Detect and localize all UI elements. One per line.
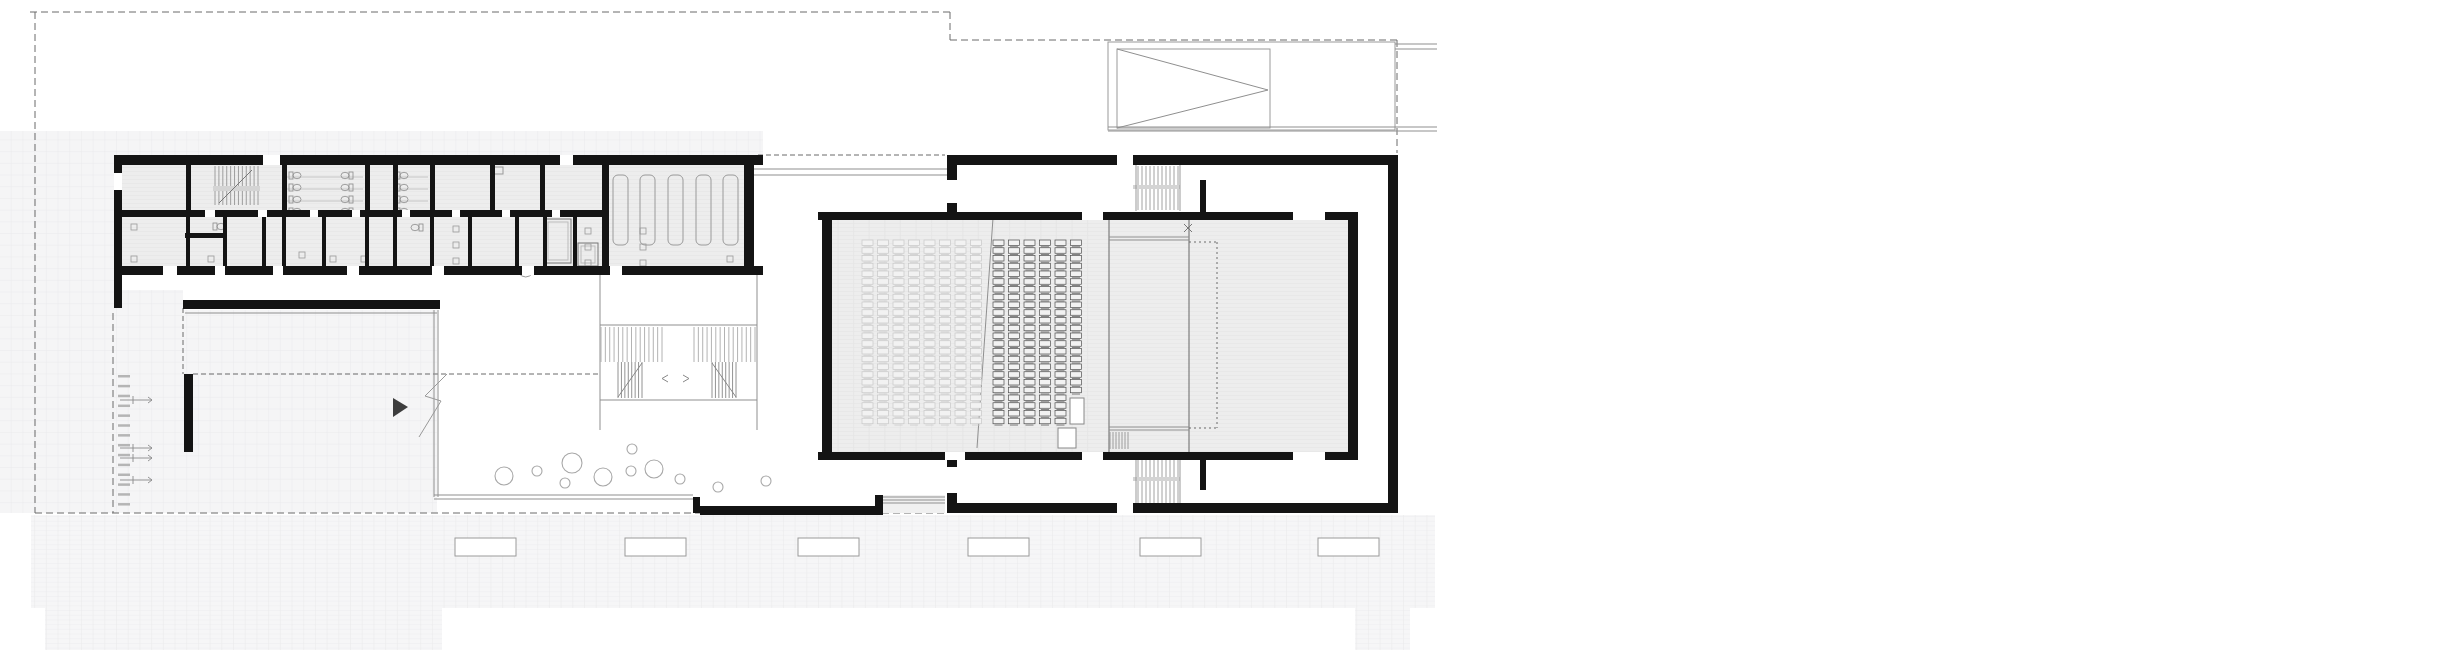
seat bbox=[940, 372, 951, 378]
bike-rack-tick bbox=[118, 503, 130, 506]
skylight-marker bbox=[1140, 538, 1201, 556]
paving-region bbox=[0, 158, 114, 513]
skylight-marker bbox=[1318, 538, 1379, 556]
seat bbox=[924, 302, 935, 308]
seat bbox=[909, 294, 920, 300]
seat bbox=[862, 333, 873, 339]
wall-segment bbox=[744, 155, 754, 275]
seat bbox=[893, 403, 904, 409]
seat bbox=[1071, 387, 1082, 393]
wall-segment bbox=[186, 217, 190, 266]
bike-rack-tick bbox=[118, 474, 130, 477]
seat bbox=[993, 403, 1004, 409]
seat bbox=[955, 380, 966, 386]
seat bbox=[924, 325, 935, 331]
seat bbox=[1055, 364, 1066, 370]
seat bbox=[893, 380, 904, 386]
seat bbox=[1009, 302, 1020, 308]
seat bbox=[993, 248, 1004, 254]
seat bbox=[971, 263, 982, 269]
seat bbox=[993, 240, 1004, 246]
seat bbox=[909, 380, 920, 386]
seat bbox=[1040, 302, 1051, 308]
seat bbox=[862, 240, 873, 246]
seat bbox=[993, 271, 1004, 277]
seat bbox=[862, 294, 873, 300]
seat bbox=[878, 418, 889, 424]
seat bbox=[1024, 356, 1035, 362]
seat bbox=[955, 263, 966, 269]
seat bbox=[955, 248, 966, 254]
seat bbox=[924, 333, 935, 339]
seat bbox=[893, 294, 904, 300]
seat bbox=[862, 302, 873, 308]
seat bbox=[862, 310, 873, 316]
door-opening bbox=[310, 210, 318, 217]
seat bbox=[1055, 271, 1066, 277]
seat bbox=[971, 271, 982, 277]
seat bbox=[1009, 263, 1020, 269]
seat bbox=[1040, 263, 1051, 269]
seat bbox=[1071, 380, 1082, 386]
seat bbox=[1009, 279, 1020, 285]
seat bbox=[1009, 287, 1020, 293]
seat bbox=[1055, 341, 1066, 347]
floor-plan-drawing bbox=[0, 0, 2450, 650]
control-desk bbox=[1058, 428, 1076, 448]
seat bbox=[1009, 248, 1020, 254]
door-opening bbox=[552, 210, 560, 217]
seat bbox=[955, 364, 966, 370]
wall-segment bbox=[602, 165, 609, 266]
seat bbox=[1055, 287, 1066, 293]
seat bbox=[1040, 240, 1051, 246]
seat bbox=[924, 279, 935, 285]
seat bbox=[1055, 248, 1066, 254]
seat bbox=[993, 341, 1004, 347]
seat bbox=[1009, 325, 1020, 331]
seat bbox=[862, 325, 873, 331]
door-opening bbox=[452, 210, 460, 217]
seat bbox=[1071, 279, 1082, 285]
seat bbox=[893, 256, 904, 262]
seat bbox=[893, 356, 904, 362]
wall-segment bbox=[121, 210, 602, 217]
seat bbox=[993, 395, 1004, 401]
seat bbox=[1040, 349, 1051, 355]
seat bbox=[955, 349, 966, 355]
seat bbox=[909, 287, 920, 293]
seat bbox=[1055, 310, 1066, 316]
seat bbox=[1040, 387, 1051, 393]
seat bbox=[1009, 403, 1020, 409]
seat bbox=[955, 325, 966, 331]
seat bbox=[1071, 302, 1082, 308]
seat bbox=[1055, 333, 1066, 339]
seat bbox=[924, 418, 935, 424]
seat bbox=[971, 411, 982, 417]
seat bbox=[955, 403, 966, 409]
seat bbox=[878, 349, 889, 355]
seat bbox=[893, 263, 904, 269]
seat bbox=[940, 356, 951, 362]
bike-rack-tick bbox=[118, 464, 130, 467]
wall-segment bbox=[393, 165, 398, 211]
seat bbox=[1009, 418, 1020, 424]
wall-segment bbox=[365, 217, 369, 266]
seat bbox=[909, 318, 920, 324]
door-opening bbox=[402, 210, 410, 217]
seat bbox=[1071, 287, 1082, 293]
seat bbox=[924, 341, 935, 347]
seat bbox=[878, 411, 889, 417]
seat bbox=[1009, 333, 1020, 339]
seat bbox=[993, 302, 1004, 308]
door-opening bbox=[522, 266, 534, 275]
seat bbox=[1055, 325, 1066, 331]
seat bbox=[993, 333, 1004, 339]
skylight-marker bbox=[625, 538, 686, 556]
seat bbox=[878, 256, 889, 262]
seat bbox=[1055, 294, 1066, 300]
seat bbox=[862, 279, 873, 285]
seat bbox=[924, 364, 935, 370]
wall-segment bbox=[430, 217, 434, 266]
wall-segment bbox=[1200, 457, 1206, 490]
wall-segment bbox=[490, 165, 495, 211]
seat bbox=[940, 240, 951, 246]
wall-segment bbox=[282, 165, 287, 211]
seat bbox=[878, 333, 889, 339]
seat bbox=[862, 364, 873, 370]
seat bbox=[1040, 287, 1051, 293]
seat bbox=[924, 256, 935, 262]
seat bbox=[993, 325, 1004, 331]
paving-region bbox=[1355, 608, 1410, 650]
seat bbox=[878, 403, 889, 409]
seat bbox=[862, 263, 873, 269]
door-opening bbox=[347, 266, 359, 275]
seat bbox=[893, 287, 904, 293]
seat bbox=[893, 325, 904, 331]
wall-segment bbox=[1348, 212, 1358, 460]
seat bbox=[1009, 318, 1020, 324]
seat bbox=[1071, 271, 1082, 277]
seat bbox=[924, 240, 935, 246]
seat bbox=[971, 349, 982, 355]
door-opening bbox=[502, 210, 510, 217]
seat bbox=[878, 310, 889, 316]
control-desk bbox=[1070, 398, 1084, 424]
seat bbox=[993, 364, 1004, 370]
seat bbox=[993, 318, 1004, 324]
bike-rack-tick bbox=[118, 375, 130, 378]
seat bbox=[1055, 318, 1066, 324]
seat bbox=[878, 341, 889, 347]
seat bbox=[878, 372, 889, 378]
seat bbox=[909, 349, 920, 355]
stair-landing bbox=[1133, 477, 1180, 481]
bike-rack-tick bbox=[118, 483, 130, 486]
seat bbox=[924, 310, 935, 316]
wall-segment bbox=[468, 217, 472, 266]
seat bbox=[940, 256, 951, 262]
seat bbox=[971, 356, 982, 362]
seat bbox=[1024, 395, 1035, 401]
wall-segment bbox=[947, 493, 957, 513]
wall-segment bbox=[947, 155, 957, 180]
door-opening bbox=[205, 210, 215, 217]
seat bbox=[1009, 294, 1020, 300]
wall-segment bbox=[183, 300, 440, 309]
seat bbox=[909, 387, 920, 393]
floor-plan-canvas bbox=[0, 0, 2450, 650]
wall-segment bbox=[186, 165, 191, 211]
seat bbox=[955, 302, 966, 308]
seat bbox=[924, 380, 935, 386]
wall-segment bbox=[393, 217, 397, 266]
seat bbox=[940, 287, 951, 293]
seat bbox=[1055, 349, 1066, 355]
bike-rack-tick bbox=[118, 395, 130, 398]
seat bbox=[940, 418, 951, 424]
seat bbox=[1009, 271, 1020, 277]
bike-rack-tick bbox=[118, 493, 130, 496]
wall-segment bbox=[875, 495, 883, 515]
window-opening bbox=[560, 155, 573, 165]
seat bbox=[1040, 310, 1051, 316]
seat bbox=[955, 395, 966, 401]
seat bbox=[993, 380, 1004, 386]
stair-landing bbox=[1133, 185, 1180, 189]
seat bbox=[1055, 387, 1066, 393]
wall-segment bbox=[282, 217, 286, 266]
seat bbox=[1055, 279, 1066, 285]
seat bbox=[1024, 333, 1035, 339]
entry-steps bbox=[883, 495, 945, 513]
wall-segment bbox=[947, 460, 957, 467]
seat bbox=[1009, 364, 1020, 370]
seat bbox=[862, 248, 873, 254]
seat bbox=[862, 372, 873, 378]
seat bbox=[878, 395, 889, 401]
wall-segment bbox=[1103, 212, 1293, 220]
seat bbox=[971, 418, 982, 424]
seat bbox=[971, 395, 982, 401]
seat bbox=[1040, 380, 1051, 386]
seat bbox=[909, 333, 920, 339]
seat bbox=[940, 279, 951, 285]
paving-region bbox=[0, 131, 763, 158]
seat bbox=[971, 372, 982, 378]
seat bbox=[1071, 318, 1082, 324]
seat bbox=[993, 263, 1004, 269]
seat bbox=[1009, 356, 1020, 362]
seat bbox=[1024, 372, 1035, 378]
seat bbox=[993, 310, 1004, 316]
seat bbox=[862, 349, 873, 355]
seat bbox=[993, 356, 1004, 362]
seat bbox=[909, 411, 920, 417]
wall-segment bbox=[322, 217, 326, 266]
seat bbox=[940, 294, 951, 300]
wall-segment bbox=[515, 217, 519, 266]
seat bbox=[909, 248, 920, 254]
bike-rack-tick bbox=[118, 424, 130, 427]
seat bbox=[1071, 325, 1082, 331]
seat bbox=[940, 263, 951, 269]
wall-segment bbox=[957, 503, 1398, 513]
bike-rack-tick bbox=[118, 444, 130, 447]
seat bbox=[1040, 341, 1051, 347]
wall-segment bbox=[693, 497, 700, 513]
seat bbox=[1040, 411, 1051, 417]
seat bbox=[1071, 333, 1082, 339]
seat bbox=[971, 294, 982, 300]
seat bbox=[1071, 248, 1082, 254]
seat bbox=[1071, 364, 1082, 370]
seat bbox=[1071, 256, 1082, 262]
seat bbox=[1055, 395, 1066, 401]
window-opening bbox=[1117, 503, 1133, 513]
seat bbox=[878, 271, 889, 277]
seat bbox=[955, 387, 966, 393]
seat bbox=[1040, 248, 1051, 254]
seat bbox=[1024, 411, 1035, 417]
seat bbox=[955, 418, 966, 424]
seat bbox=[862, 356, 873, 362]
seat bbox=[878, 325, 889, 331]
wall-segment bbox=[818, 212, 1082, 220]
seat bbox=[1071, 356, 1082, 362]
door-opening bbox=[215, 266, 225, 275]
seat bbox=[955, 310, 966, 316]
seat bbox=[940, 333, 951, 339]
seat bbox=[862, 387, 873, 393]
seat bbox=[993, 256, 1004, 262]
door-opening bbox=[258, 210, 267, 217]
seat bbox=[1040, 418, 1051, 424]
seat bbox=[878, 294, 889, 300]
seat bbox=[1040, 372, 1051, 378]
seat bbox=[940, 271, 951, 277]
seat bbox=[1040, 279, 1051, 285]
seat bbox=[1009, 387, 1020, 393]
seat bbox=[1040, 403, 1051, 409]
seat bbox=[1071, 294, 1082, 300]
seat bbox=[971, 325, 982, 331]
seat bbox=[893, 341, 904, 347]
seat bbox=[1024, 318, 1035, 324]
seat bbox=[1009, 256, 1020, 262]
seat bbox=[1040, 256, 1051, 262]
skylight-marker bbox=[968, 538, 1029, 556]
seat bbox=[909, 240, 920, 246]
seat bbox=[955, 271, 966, 277]
seat bbox=[955, 287, 966, 293]
seat bbox=[862, 318, 873, 324]
seat bbox=[1024, 287, 1035, 293]
wall-segment bbox=[185, 233, 223, 238]
seat bbox=[1024, 418, 1035, 424]
seat bbox=[878, 318, 889, 324]
seat bbox=[1009, 372, 1020, 378]
seat bbox=[1009, 240, 1020, 246]
seat bbox=[971, 310, 982, 316]
seat bbox=[909, 418, 920, 424]
seat bbox=[924, 318, 935, 324]
wall-segment bbox=[965, 452, 1082, 460]
seat bbox=[940, 364, 951, 370]
seat bbox=[909, 279, 920, 285]
seat bbox=[862, 341, 873, 347]
wall-segment bbox=[184, 374, 193, 452]
seat bbox=[1009, 341, 1020, 347]
seat bbox=[909, 364, 920, 370]
paving-region bbox=[45, 608, 442, 650]
seat bbox=[971, 333, 982, 339]
seat bbox=[862, 256, 873, 262]
seat bbox=[971, 364, 982, 370]
seat bbox=[1009, 395, 1020, 401]
wall-segment bbox=[262, 217, 266, 266]
seat bbox=[993, 279, 1004, 285]
bike-rack-tick bbox=[118, 434, 130, 437]
seat bbox=[971, 403, 982, 409]
seat bbox=[1055, 380, 1066, 386]
seat bbox=[893, 395, 904, 401]
seat bbox=[993, 287, 1004, 293]
window-opening bbox=[114, 173, 122, 190]
seat bbox=[940, 380, 951, 386]
seat bbox=[1055, 302, 1066, 308]
seat bbox=[924, 356, 935, 362]
seat bbox=[955, 240, 966, 246]
seat bbox=[893, 349, 904, 355]
seat bbox=[878, 240, 889, 246]
bike-rack-tick bbox=[118, 405, 130, 408]
seat bbox=[878, 380, 889, 386]
seat bbox=[940, 387, 951, 393]
stage-stair-treads bbox=[1110, 432, 1128, 449]
seat bbox=[955, 356, 966, 362]
stair-landing bbox=[213, 186, 260, 191]
seat bbox=[878, 387, 889, 393]
seat bbox=[878, 356, 889, 362]
seat bbox=[940, 349, 951, 355]
seat bbox=[1071, 372, 1082, 378]
seat bbox=[878, 364, 889, 370]
seat bbox=[940, 341, 951, 347]
seat bbox=[971, 318, 982, 324]
wall-segment bbox=[543, 217, 547, 266]
seat bbox=[878, 302, 889, 308]
paving-region bbox=[31, 515, 1435, 608]
seat bbox=[993, 349, 1004, 355]
seat bbox=[878, 248, 889, 254]
seat bbox=[909, 263, 920, 269]
seat bbox=[893, 279, 904, 285]
seat bbox=[1055, 263, 1066, 269]
seat bbox=[955, 333, 966, 339]
wall-segment bbox=[540, 165, 545, 211]
seat bbox=[924, 372, 935, 378]
seat bbox=[893, 248, 904, 254]
bike-rack-tick bbox=[118, 385, 130, 388]
seat bbox=[940, 302, 951, 308]
seat bbox=[893, 372, 904, 378]
wall-segment bbox=[573, 217, 577, 266]
